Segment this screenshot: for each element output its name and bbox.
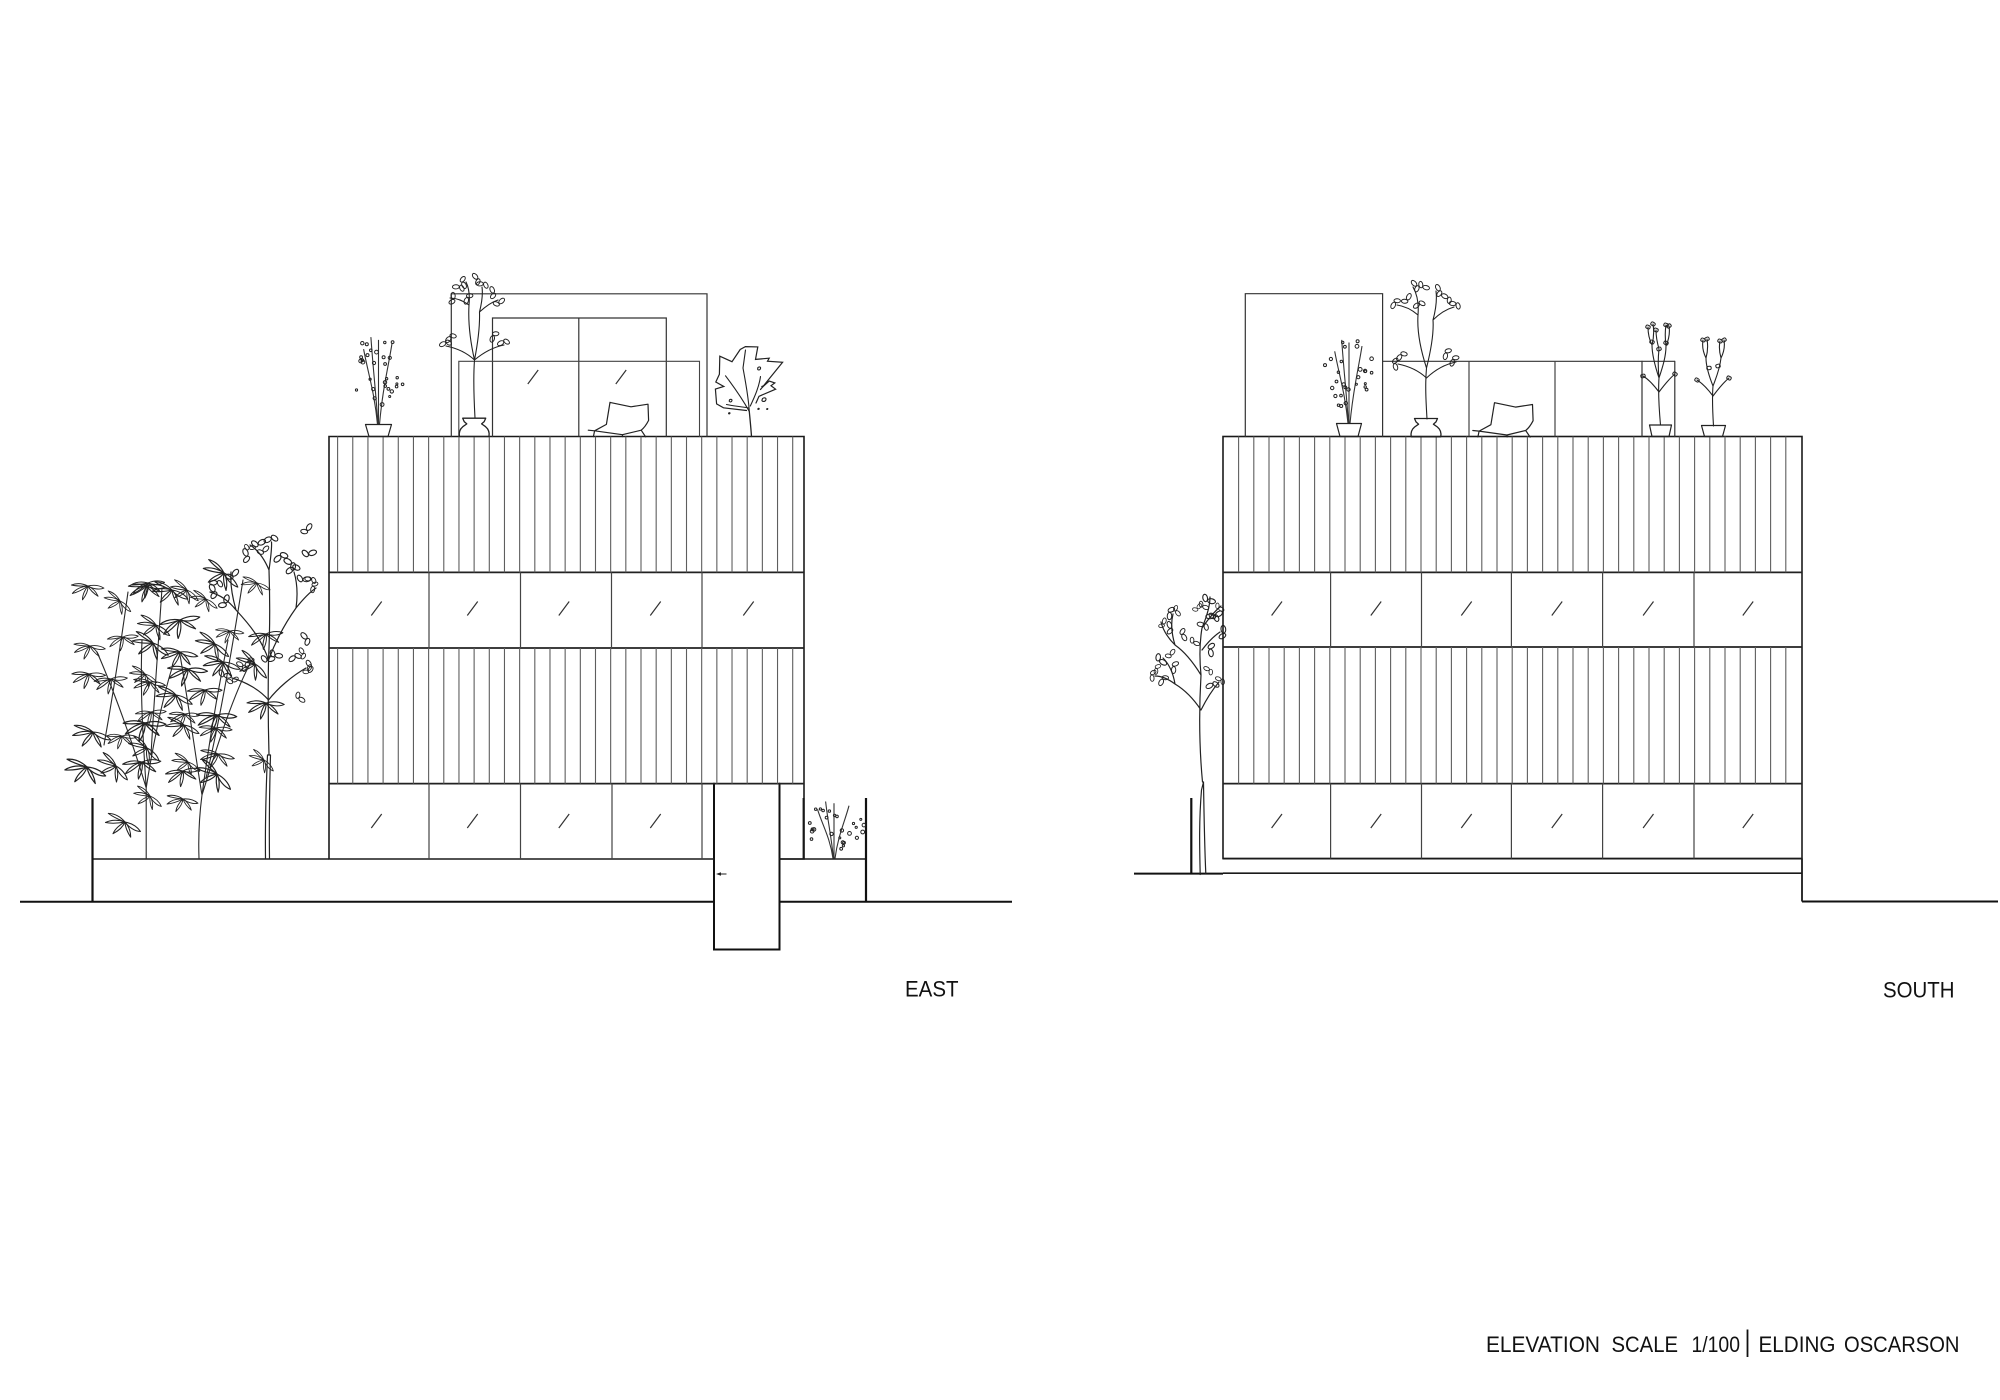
svg-text:SCALE: SCALE [1612, 1332, 1679, 1357]
svg-text:OSCARSON: OSCARSON [1844, 1332, 1960, 1357]
svg-text:SOUTH: SOUTH [1883, 978, 1955, 1003]
svg-text:EAST: EAST [905, 977, 959, 1002]
svg-text:1/100: 1/100 [1692, 1332, 1741, 1357]
svg-text:ELEVATION: ELEVATION [1486, 1332, 1600, 1357]
svg-text:ELDING: ELDING [1759, 1332, 1836, 1357]
